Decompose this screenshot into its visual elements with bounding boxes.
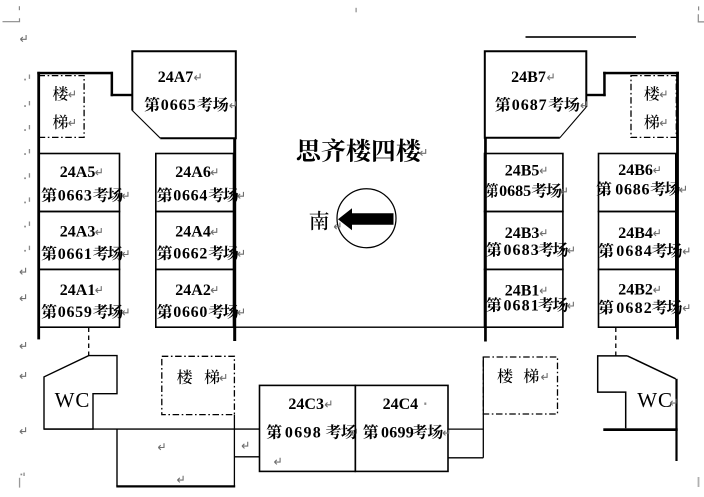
svg-text:0661: 0661 [58,246,93,263]
svg-text:24A3: 24A3 [60,224,96,241]
svg-text:0682: 0682 [616,300,653,317]
svg-text:0685: 0685 [499,183,531,200]
svg-text:0698: 0698 [285,425,322,442]
svg-text:0681: 0681 [503,297,539,314]
svg-text:24C4: 24C4 [383,396,419,413]
svg-text:24A6: 24A6 [175,164,211,181]
svg-text:0659: 0659 [58,304,93,321]
svg-text:24B6: 24B6 [618,162,653,179]
svg-text:24B5: 24B5 [505,162,540,179]
svg-text:24B7: 24B7 [511,69,546,86]
svg-text:0684: 0684 [616,243,653,260]
svg-text:24B3: 24B3 [505,225,540,242]
svg-text:24B4: 24B4 [618,225,653,242]
svg-text:0686: 0686 [615,182,650,199]
svg-text:24A2: 24A2 [175,282,211,299]
svg-text:WC: WC [637,388,673,412]
svg-text:0662: 0662 [173,246,208,263]
svg-text:24A1: 24A1 [60,282,96,299]
svg-text:0687: 0687 [512,97,548,114]
svg-text:0683: 0683 [503,242,539,259]
svg-text:24C3: 24C3 [288,396,324,413]
svg-text:0660: 0660 [173,304,208,321]
svg-text:0699: 0699 [381,425,414,442]
svg-text:WC: WC [55,388,91,412]
svg-text:0663: 0663 [58,188,93,205]
svg-text:24B2: 24B2 [618,282,653,299]
svg-text:24A4: 24A4 [175,224,211,241]
svg-text:24A5: 24A5 [60,164,96,181]
svg-text:0664: 0664 [173,188,208,205]
svg-text:24A7: 24A7 [158,69,194,86]
svg-text:0665: 0665 [161,97,197,114]
